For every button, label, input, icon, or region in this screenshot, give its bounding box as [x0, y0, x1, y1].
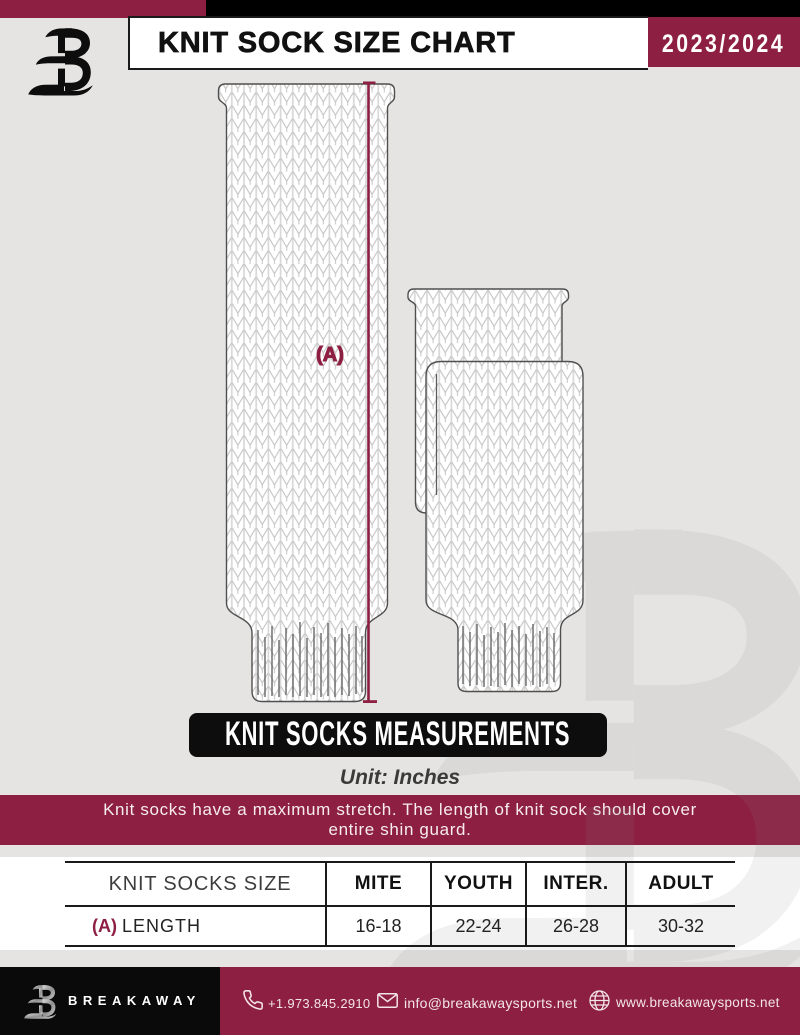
svg-text:(A): (A) [316, 344, 344, 366]
